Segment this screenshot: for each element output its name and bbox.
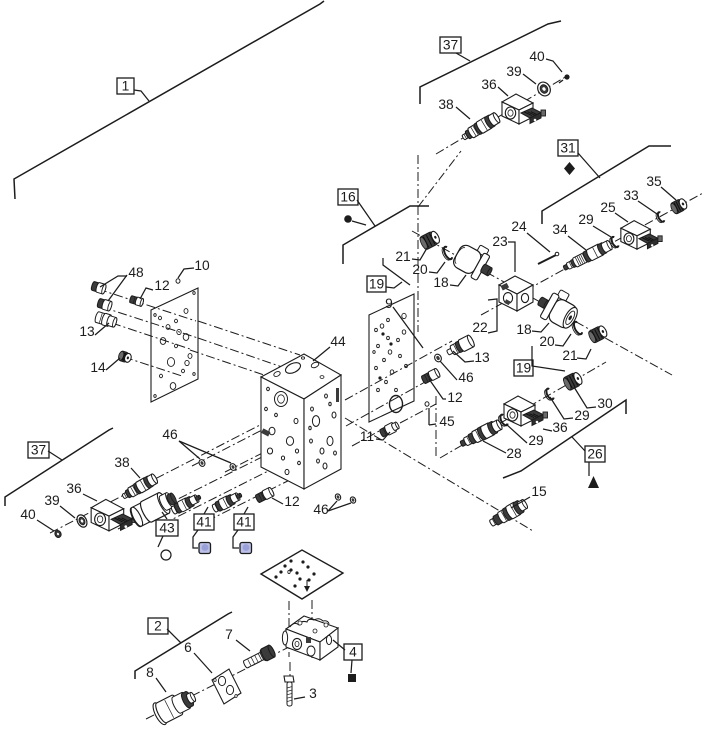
svg-text:36: 36 bbox=[66, 481, 82, 496]
svg-text:46: 46 bbox=[162, 427, 178, 442]
svg-text:29: 29 bbox=[528, 433, 544, 448]
svg-text:2: 2 bbox=[154, 619, 162, 634]
svg-text:12: 12 bbox=[284, 494, 299, 509]
svg-text:41: 41 bbox=[236, 515, 251, 530]
svg-text:1: 1 bbox=[122, 79, 130, 94]
svg-text:19: 19 bbox=[369, 277, 385, 292]
svg-text:21: 21 bbox=[395, 249, 410, 264]
svg-text:14: 14 bbox=[90, 360, 106, 375]
svg-text:34: 34 bbox=[552, 222, 568, 237]
svg-text:7: 7 bbox=[225, 627, 233, 642]
svg-text:28: 28 bbox=[506, 446, 522, 461]
svg-text:19: 19 bbox=[516, 361, 532, 376]
svg-text:4: 4 bbox=[349, 645, 357, 660]
svg-text:31: 31 bbox=[560, 141, 575, 156]
svg-text:26: 26 bbox=[587, 447, 603, 462]
svg-text:16: 16 bbox=[340, 190, 356, 205]
svg-text:18: 18 bbox=[516, 322, 532, 337]
svg-text:45: 45 bbox=[439, 414, 455, 429]
svg-text:29: 29 bbox=[578, 212, 594, 227]
svg-text:20: 20 bbox=[412, 262, 428, 277]
svg-text:13: 13 bbox=[79, 324, 95, 339]
svg-text:37: 37 bbox=[31, 443, 46, 458]
svg-text:46: 46 bbox=[313, 502, 329, 517]
svg-text:18: 18 bbox=[433, 275, 449, 290]
svg-text:20: 20 bbox=[539, 334, 555, 349]
svg-text:35: 35 bbox=[646, 174, 662, 189]
svg-text:46: 46 bbox=[458, 370, 474, 385]
svg-text:38: 38 bbox=[114, 455, 130, 470]
svg-text:30: 30 bbox=[597, 396, 613, 411]
svg-text:29: 29 bbox=[574, 408, 590, 423]
svg-text:41: 41 bbox=[196, 515, 211, 530]
svg-text:12: 12 bbox=[154, 278, 169, 293]
svg-text:38: 38 bbox=[438, 97, 454, 112]
svg-text:25: 25 bbox=[600, 200, 616, 215]
svg-text:3: 3 bbox=[309, 686, 317, 701]
svg-text:44: 44 bbox=[330, 334, 346, 349]
svg-text:10: 10 bbox=[194, 258, 210, 273]
svg-text:6: 6 bbox=[184, 640, 192, 655]
svg-text:9: 9 bbox=[385, 296, 393, 311]
svg-text:40: 40 bbox=[20, 507, 36, 522]
svg-text:40: 40 bbox=[529, 49, 545, 64]
svg-text:37: 37 bbox=[443, 38, 458, 53]
svg-text:36: 36 bbox=[481, 77, 497, 92]
svg-text:21: 21 bbox=[562, 348, 577, 363]
svg-text:39: 39 bbox=[44, 493, 60, 508]
svg-text:24: 24 bbox=[511, 219, 527, 234]
svg-text:8: 8 bbox=[146, 665, 154, 680]
svg-text:23: 23 bbox=[492, 234, 508, 249]
svg-text:22: 22 bbox=[472, 320, 487, 335]
svg-text:48: 48 bbox=[128, 265, 144, 280]
svg-text:12: 12 bbox=[447, 390, 462, 405]
svg-text:11: 11 bbox=[360, 429, 374, 444]
svg-text:43: 43 bbox=[159, 521, 175, 536]
svg-text:15: 15 bbox=[531, 484, 547, 499]
svg-text:33: 33 bbox=[623, 188, 639, 203]
svg-text:13: 13 bbox=[474, 350, 490, 365]
svg-text:36: 36 bbox=[552, 420, 568, 435]
svg-text:39: 39 bbox=[506, 64, 522, 79]
